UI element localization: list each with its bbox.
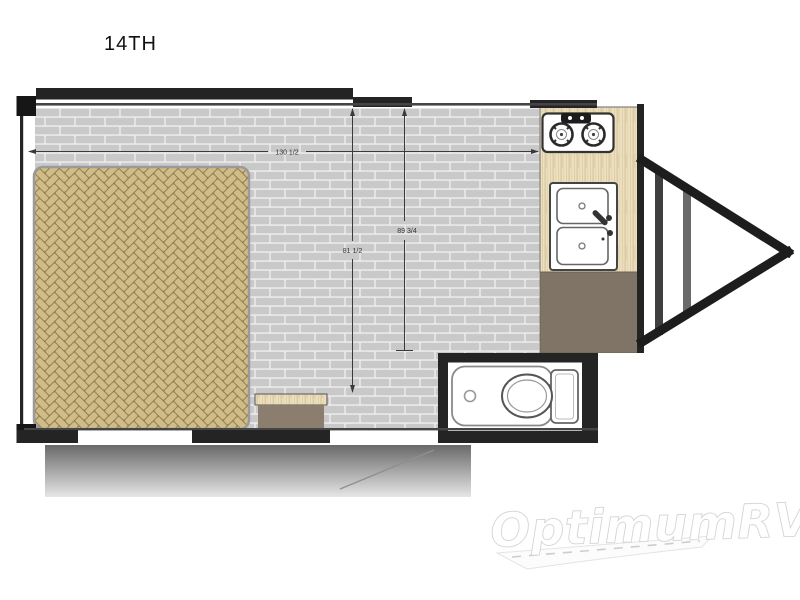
bottom-wall-segment-2 (192, 430, 330, 443)
bottom-wall-segment-1 (17, 430, 79, 443)
dimension-width-label: 130 1/2 (275, 150, 298, 157)
ramp-door (45, 445, 471, 497)
top-wall-window-bar (36, 88, 353, 100)
floorplan-page: 14TH (0, 0, 800, 600)
hitch-frame-icon (642, 160, 788, 342)
kitchen-cabinet (540, 272, 642, 353)
top-wall-line (24, 103, 597, 106)
dimension-right-label: 89 3/4 (397, 228, 417, 235)
sink-icon (550, 183, 617, 270)
watermark: OptimumRV (489, 493, 800, 569)
floorplan-drawing: 130 1/2 81 1/2 89 3/4 (0, 0, 800, 600)
watermark-text: OptimumRV (489, 493, 800, 559)
front-wall (637, 104, 644, 353)
bed-mat (34, 167, 249, 429)
front-left-corner (17, 96, 37, 116)
step-cabinet (255, 394, 327, 430)
body-cutout (598, 353, 650, 437)
dimension-left-label: 81 1/2 (343, 248, 363, 255)
stove-icon (543, 113, 614, 153)
toilet-icon (452, 367, 578, 426)
left-wall (20, 98, 23, 443)
